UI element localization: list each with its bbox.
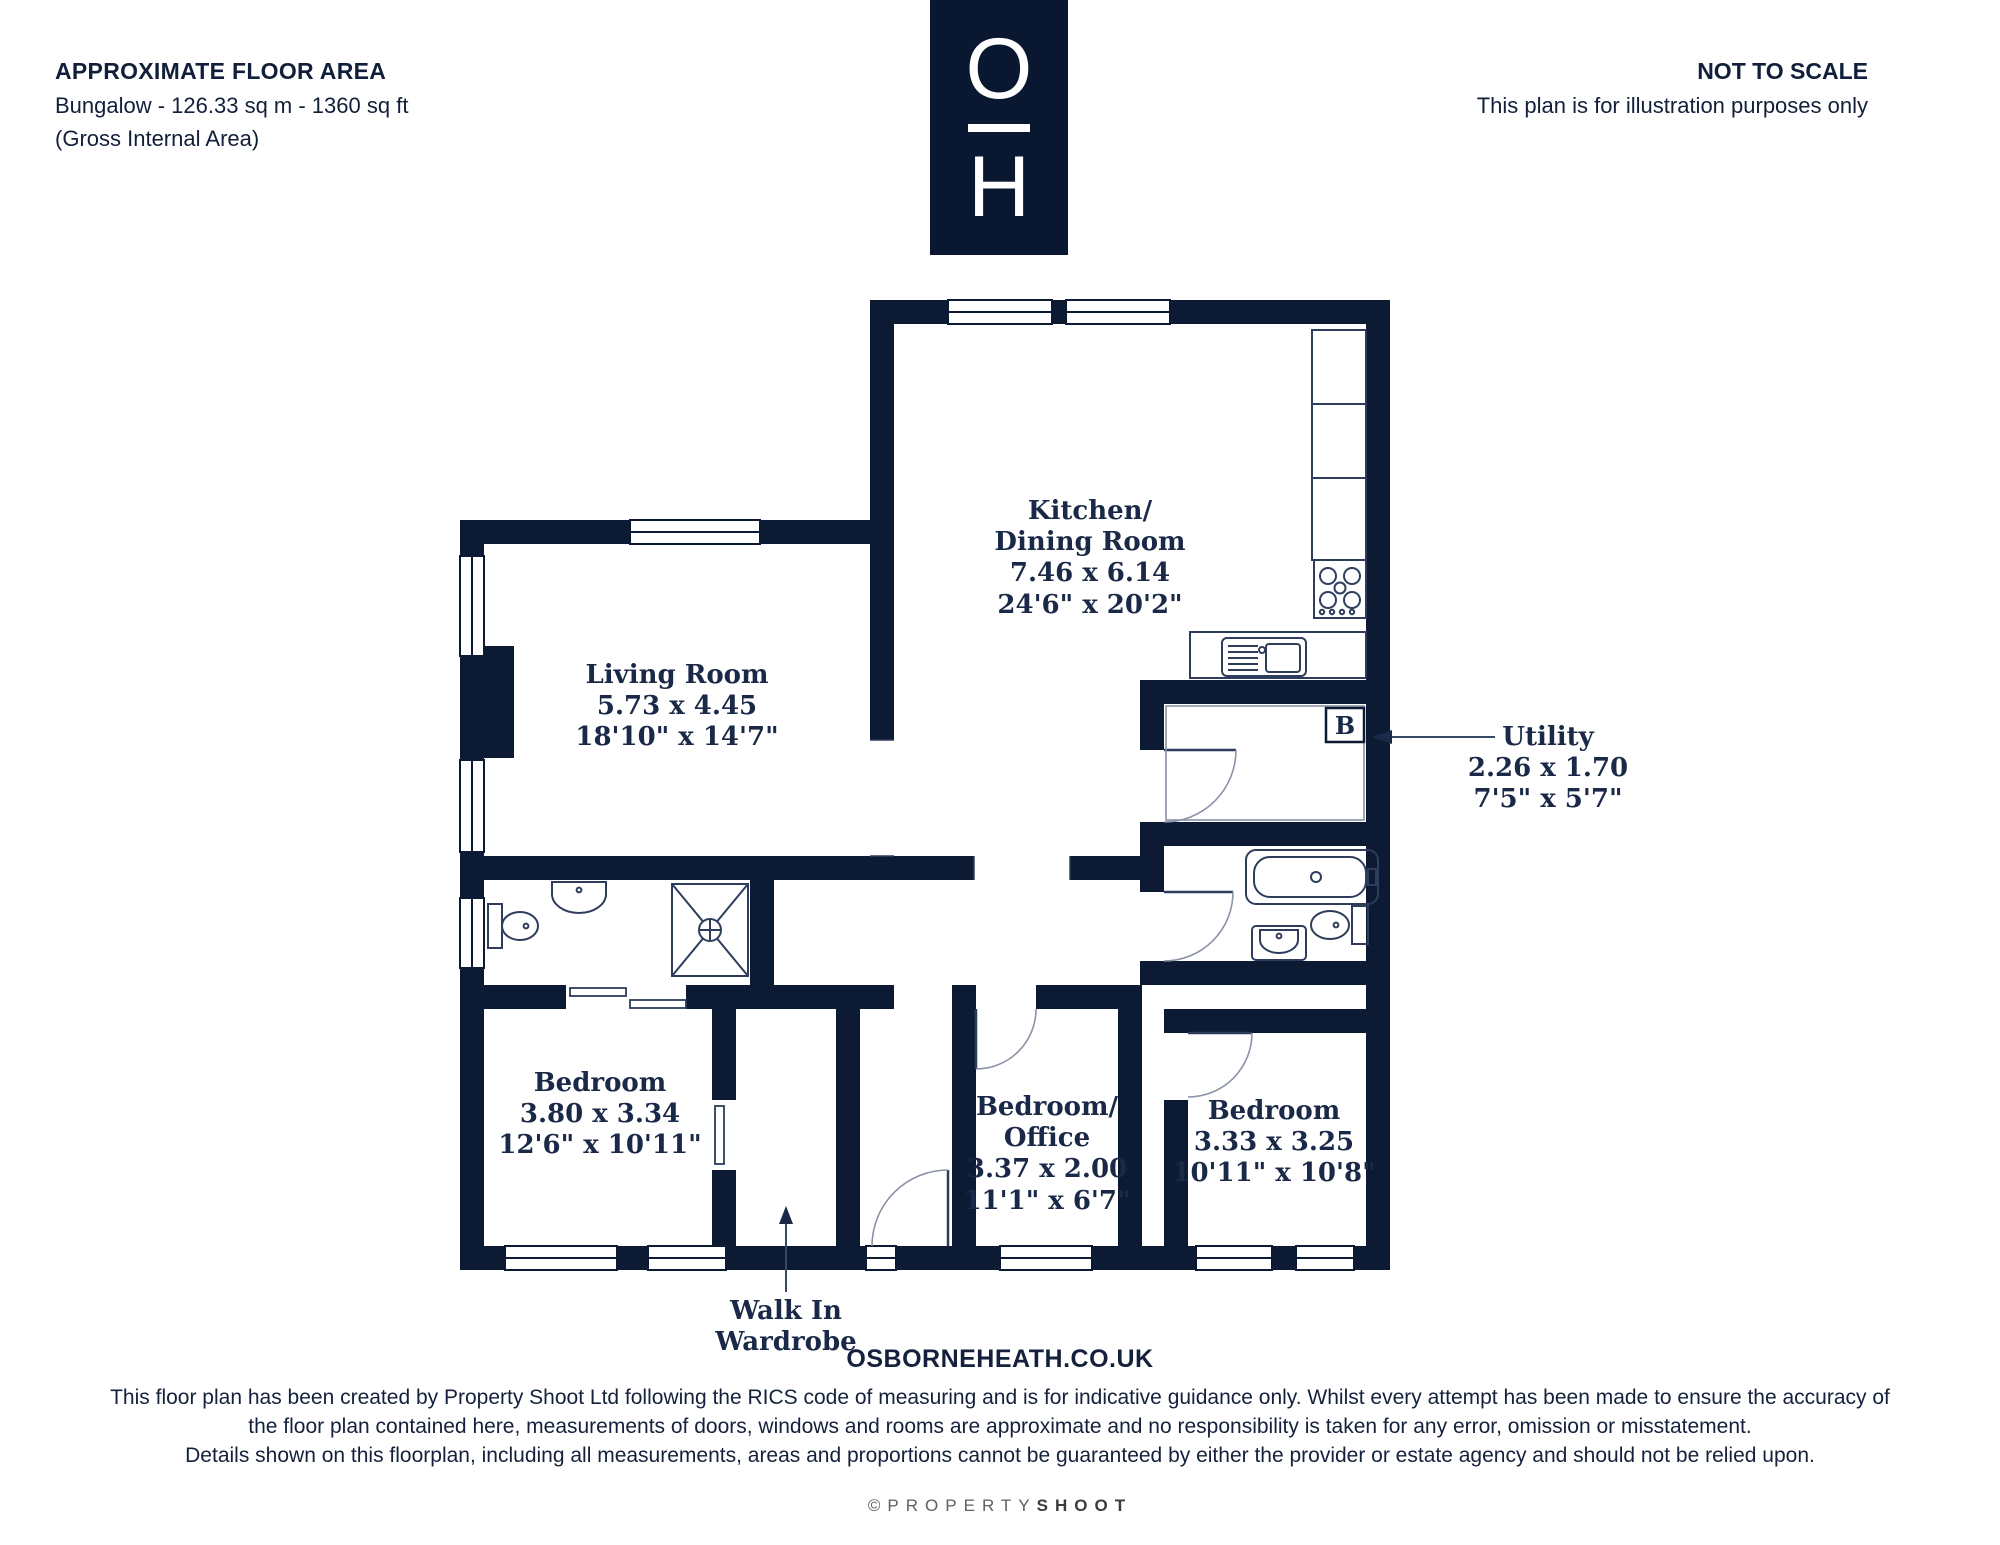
floor-area-title: APPROXIMATE FLOOR AREA <box>55 58 408 85</box>
doors <box>570 740 1252 1246</box>
boiler-label: B <box>1326 708 1364 742</box>
logo-letter-h: H <box>968 144 1030 230</box>
not-to-scale-subtitle: This plan is for illustration purposes o… <box>1477 93 1868 119</box>
bath-tub <box>1246 850 1378 904</box>
floorplan-page: APPROXIMATE FLOOR AREA Bungalow - 126.33… <box>0 0 2000 1545</box>
toilet-ensuite <box>488 904 538 948</box>
not-to-scale-block: NOT TO SCALE This plan is for illustrati… <box>1477 58 1868 119</box>
room-label-kitchen: Kitchen/ Dining Room 7.46 x 6.14 24'6" x… <box>994 496 1185 621</box>
ensuite-fixtures <box>488 882 748 976</box>
logo-divider <box>968 124 1030 132</box>
brand-logo: O H <box>930 0 1068 255</box>
kitchen-fixtures <box>1190 330 1366 678</box>
room-label-utility: Utility 2.26 x 1.70 7'5" x 5'7" <box>1468 722 1628 816</box>
shower <box>672 884 748 976</box>
room-label-living: Living Room 5.73 x 4.45 18'10" x 14'7" <box>575 660 778 754</box>
disclaimer-line2: the floor plan contained here, measureme… <box>0 1413 2000 1442</box>
room-label-bedroom1: Bedroom 3.80 x 3.34 12'6" x 10'11" <box>498 1068 701 1162</box>
copyright-icon: © <box>868 1496 888 1515</box>
basin-bathroom <box>1252 926 1306 960</box>
room-label-bedroom-office: Bedroom/ Office 3.37 x 2.00 11'1" x 6'7" <box>963 1092 1130 1217</box>
bathroom-fixtures <box>1246 850 1378 960</box>
website-text: OSBORNEHEATH.CO.UK <box>0 1345 2000 1374</box>
logo-letter-o: O <box>966 26 1033 112</box>
hob <box>1314 560 1366 618</box>
disclaimer-line1: This floor plan has been created by Prop… <box>0 1384 2000 1413</box>
toilet-bathroom <box>1311 906 1368 944</box>
floor-area-line2: (Gross Internal Area) <box>55 126 408 152</box>
sink <box>1222 638 1306 676</box>
kitchen-units <box>1312 330 1366 560</box>
disclaimer-block: This floor plan has been created by Prop… <box>0 1384 2000 1471</box>
room-label-bedroom2: Bedroom 3.33 x 3.25 10'11" x 10'8" <box>1172 1096 1375 1190</box>
disclaimer-line3: Details shown on this floorplan, includi… <box>0 1442 2000 1471</box>
floor-area-line1: Bungalow - 126.33 sq m - 1360 sq ft <box>55 93 408 119</box>
basin-ensuite <box>552 882 606 913</box>
floor-area-block: APPROXIMATE FLOOR AREA Bungalow - 126.33… <box>55 58 408 159</box>
not-to-scale-title: NOT TO SCALE <box>1477 58 1868 85</box>
propertyshoot-credit: ©PROPERTYSHOOT <box>0 1496 2000 1516</box>
